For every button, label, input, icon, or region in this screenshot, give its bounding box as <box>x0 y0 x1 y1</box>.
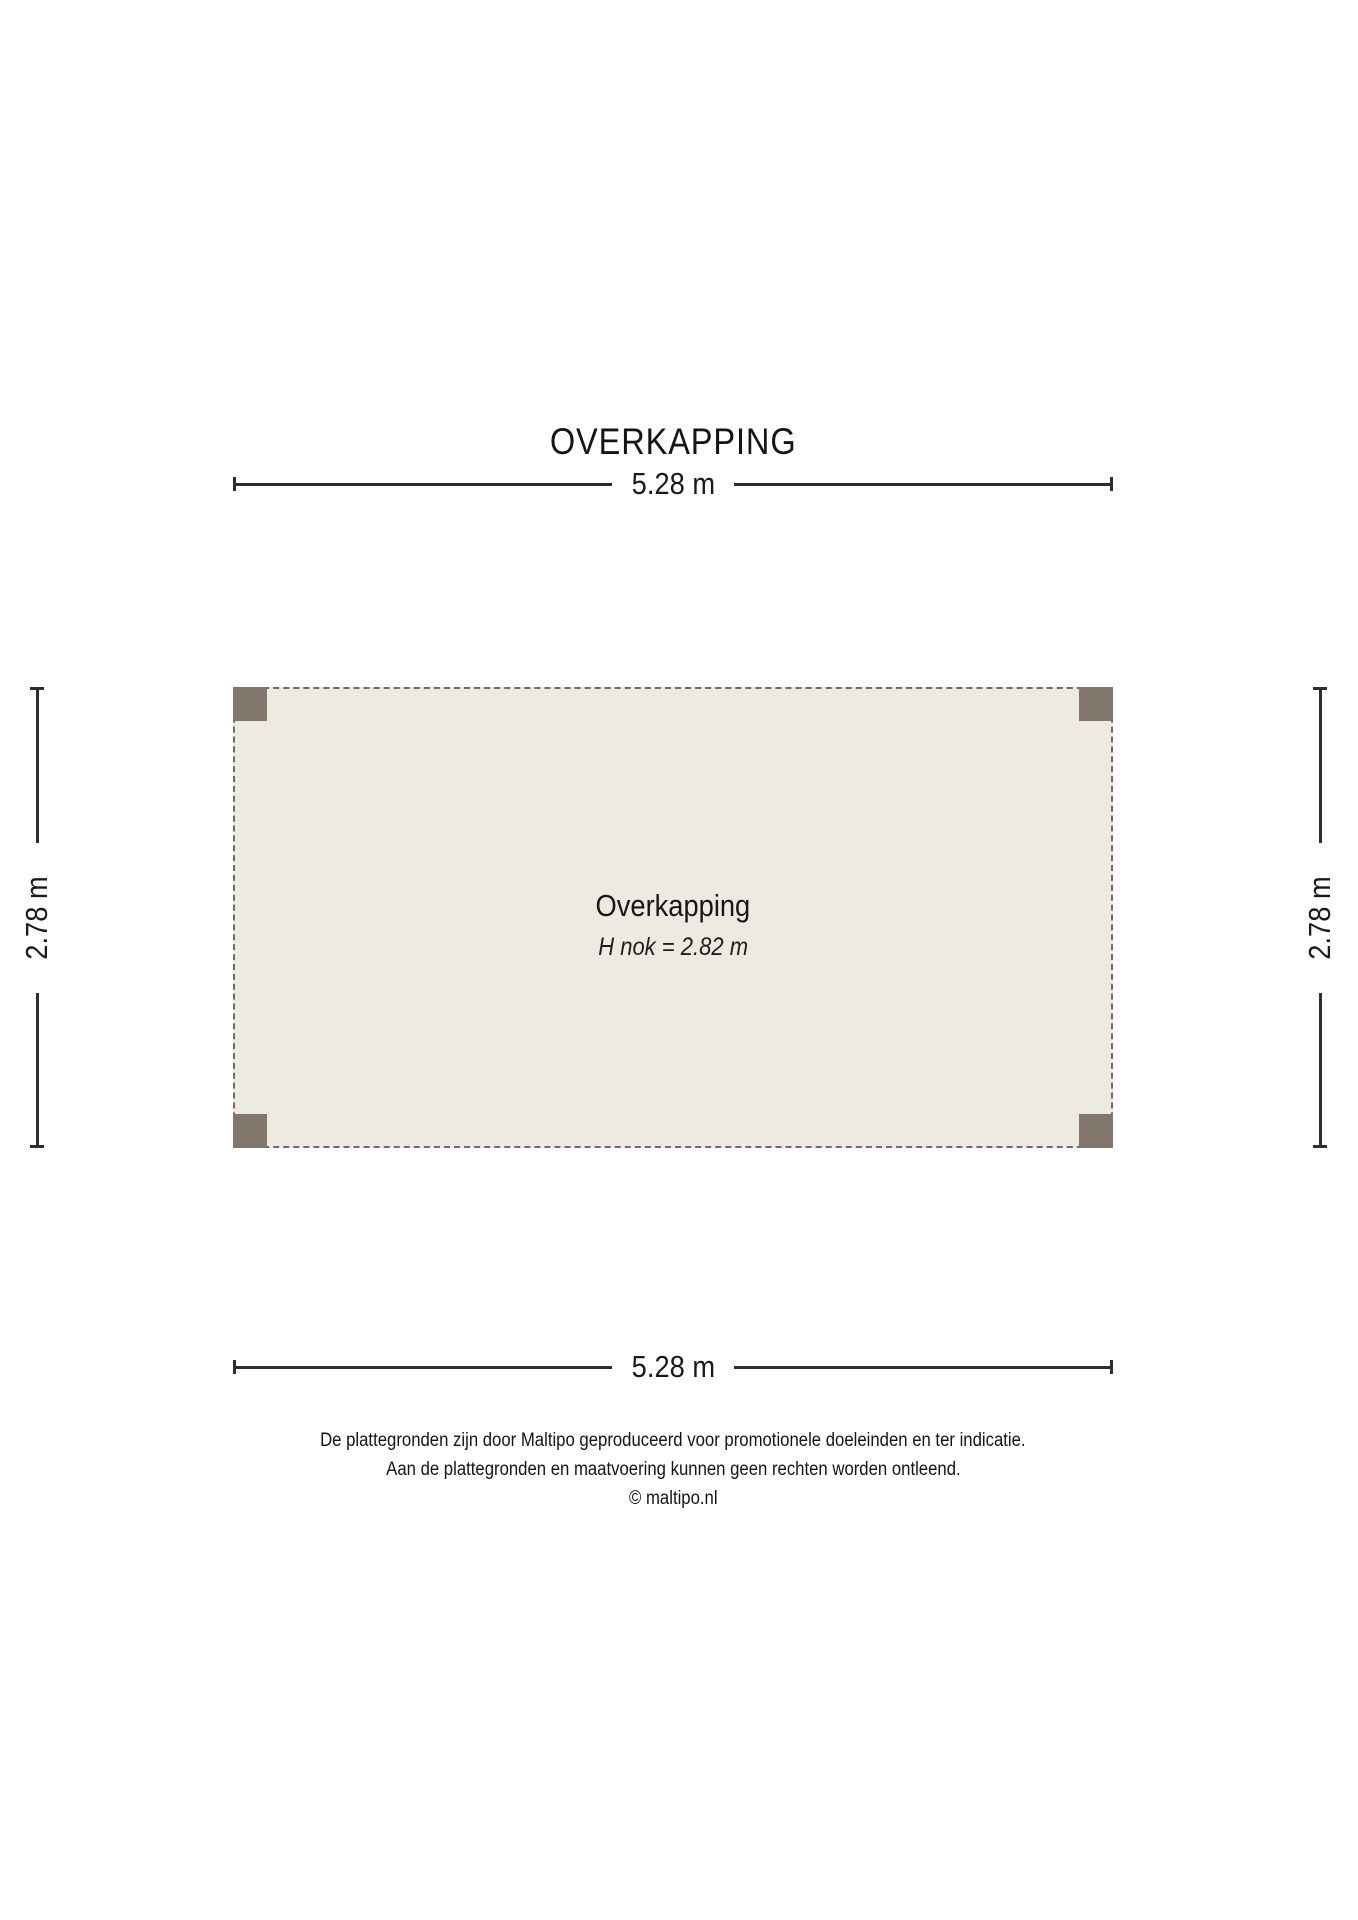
disclaimer-line-2-text: Aan de plattegronden en maatvoering kunn… <box>386 1455 960 1484</box>
room-label-text: Overkapping <box>596 889 751 923</box>
disclaimer-line-1: De plattegronden zijn door Maltipo gepro… <box>233 1426 1113 1455</box>
dimension-bottom-value: 5.28 m <box>631 1349 714 1385</box>
dimension-left-value: 2.78 m <box>19 876 55 959</box>
dimension-right-value: 2.78 m <box>1302 876 1338 959</box>
overkapping-room-outline: Overkapping H nok = 2.82 m <box>233 687 1113 1148</box>
ridge-height-label: H nok = 2.82 m <box>235 933 1111 961</box>
dimension-right: 2.78 m <box>1313 687 1327 1148</box>
dimension-left-label: 2.78 m <box>30 843 44 993</box>
disclaimer: De plattegronden zijn door Maltipo gepro… <box>233 1426 1113 1513</box>
ridge-height-text: H nok = 2.82 m <box>598 933 748 961</box>
corner-post-top-left <box>233 687 267 721</box>
corner-post-top-right <box>1079 687 1113 721</box>
dimension-line-segment <box>36 690 39 843</box>
dimension-line-segment <box>236 483 612 486</box>
dimension-top-value: 5.28 m <box>631 466 714 502</box>
dimension-right-label: 2.78 m <box>1313 843 1327 993</box>
dimension-line-segment <box>1319 993 1322 1146</box>
disclaimer-line-2: Aan de plattegronden en maatvoering kunn… <box>233 1455 1113 1484</box>
corner-post-bottom-right <box>1079 1114 1113 1148</box>
dimension-line-segment <box>236 1366 612 1369</box>
room-label: Overkapping <box>235 889 1111 923</box>
dimension-end-tick <box>30 1145 44 1148</box>
copyright-text: © maltipo.nl <box>629 1484 718 1513</box>
dimension-line-segment <box>734 1366 1110 1369</box>
dimension-end-tick <box>1110 1360 1113 1374</box>
dimension-end-tick <box>1313 1145 1327 1148</box>
corner-post-bottom-left <box>233 1114 267 1148</box>
dimension-line-segment <box>36 993 39 1146</box>
copyright-line: © maltipo.nl <box>233 1484 1113 1513</box>
dimension-bottom-label: 5.28 m <box>612 1349 735 1385</box>
dimension-top: 5.28 m <box>233 477 1113 491</box>
disclaimer-line-1-text: De plattegronden zijn door Maltipo gepro… <box>320 1426 1025 1455</box>
dimension-left: 2.78 m <box>30 687 44 1148</box>
floorplan-page: OVERKAPPING 5.28 m 2.78 m 2.78 m <box>0 0 1358 1920</box>
dimension-line-segment <box>734 483 1110 486</box>
dimension-top-label: 5.28 m <box>612 466 735 502</box>
dimension-line-segment <box>1319 690 1322 843</box>
page-title: OVERKAPPING <box>233 421 1113 463</box>
page-title-text: OVERKAPPING <box>550 421 797 463</box>
dimension-bottom: 5.28 m <box>233 1360 1113 1374</box>
dimension-end-tick <box>1110 477 1113 491</box>
